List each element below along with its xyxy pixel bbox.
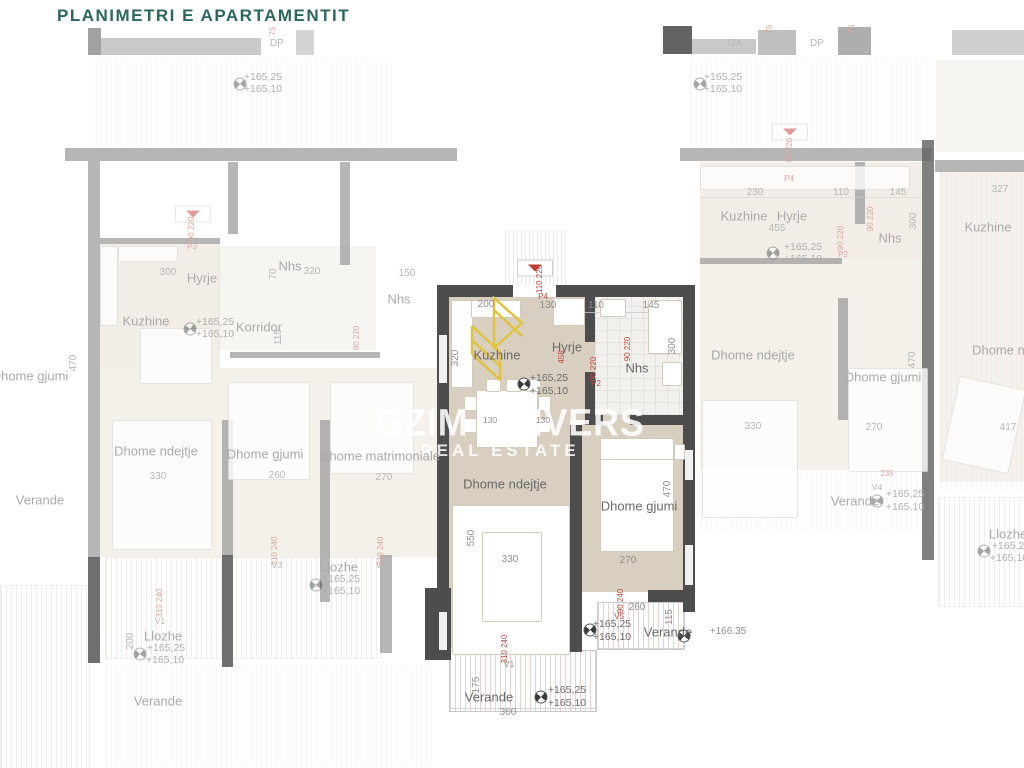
- plan-label: +166.35: [710, 627, 746, 637]
- plan-label: +165,25: [244, 72, 282, 83]
- plan-label: 90 220: [624, 337, 632, 361]
- plan-label: +165,10: [784, 254, 822, 265]
- plan-label: DP: [810, 39, 824, 49]
- plan-label: 470: [908, 352, 918, 369]
- wall-segment: [340, 162, 350, 265]
- furniture-sofa: [112, 420, 212, 550]
- plan-label: 455: [769, 224, 786, 234]
- plan-label: 470: [663, 481, 673, 498]
- plan-label: 75: [766, 25, 774, 34]
- plan-label: +165,25: [784, 242, 822, 253]
- plan-label: Nhs: [878, 232, 901, 245]
- wall-segment: [228, 162, 238, 234]
- plan-label: +165,10: [244, 84, 282, 95]
- plan-label: +165,10: [530, 386, 568, 397]
- plan-label: V1: [155, 617, 165, 626]
- plan-label: Dhome matrimoniale: [320, 450, 440, 463]
- plan-label: Nhs: [387, 293, 410, 306]
- plan-label: 145: [890, 188, 907, 198]
- plan-label: 300: [160, 268, 177, 278]
- plan-label: Hyrje: [777, 210, 807, 223]
- plan-label: +165,25: [548, 685, 586, 696]
- plan-label: 330: [150, 472, 167, 482]
- plan-label: 75: [269, 27, 277, 36]
- plan-label: P2: [591, 380, 601, 388]
- furniture-nightstand: [674, 444, 685, 460]
- balcony-verande: [105, 665, 432, 767]
- upper-slab: [663, 26, 692, 54]
- wall-segment: [65, 148, 457, 161]
- upper-slab: [692, 39, 756, 54]
- plan-label: P3: [187, 243, 197, 251]
- plan-label: Kuzhine: [965, 221, 1012, 234]
- wall-segment: [222, 555, 233, 667]
- plan-label: 90 220: [786, 138, 794, 162]
- plan-label: Dhome gjumi: [845, 371, 922, 384]
- plan-label: Nhs: [278, 260, 301, 273]
- plan-label: V4: [872, 483, 882, 492]
- plan-label: V3: [376, 561, 386, 570]
- plan-label: Verande: [134, 695, 182, 708]
- plan-label: 550: [467, 530, 477, 547]
- plan-label: Kuzhine: [474, 349, 521, 362]
- window-slit: [685, 450, 693, 480]
- plan-label: 327: [992, 185, 1009, 195]
- upper-slab: [296, 30, 314, 55]
- plan-label: +165,25: [992, 541, 1024, 552]
- plan-label: Dhome ndejtje: [114, 445, 198, 458]
- plan-label: Dhome ndejtje: [972, 344, 1024, 357]
- plan-label: 417: [1000, 423, 1017, 433]
- plan-label: 115: [665, 609, 675, 625]
- plan-label: Llozhe: [144, 630, 182, 643]
- window-slit: [685, 545, 693, 585]
- wall-segment: [88, 557, 100, 663]
- plan-label: 235: [880, 470, 893, 478]
- plan-label: 90 220: [188, 217, 196, 241]
- wall-segment: [648, 590, 695, 602]
- plan-label: 90 220: [353, 326, 361, 350]
- plan-label: Verande: [831, 495, 879, 508]
- plan-label: 115: [274, 329, 284, 345]
- plan-label: 310 240: [501, 635, 509, 664]
- wall-segment: [230, 352, 380, 358]
- plan-label: +165,10: [196, 329, 234, 340]
- plan-label: Nhs: [625, 362, 648, 375]
- plan-label: +165,25: [593, 619, 631, 630]
- floor-plan-page: PLANIMETRI E APARTAMENTIT: [0, 0, 1024, 768]
- plan-label: +165,10: [548, 698, 586, 709]
- plan-label: Llozhe: [989, 528, 1024, 541]
- plan-label: +165,25: [886, 489, 924, 500]
- plan-label: +165,10: [886, 502, 924, 513]
- plan-label: 90 240: [617, 589, 625, 613]
- plan-label: +165,10: [322, 586, 360, 597]
- plan-label: P2: [838, 251, 848, 259]
- plan-label: Dhome gjumi: [601, 500, 678, 513]
- dimension-line: [597, 648, 683, 649]
- plan-label: 110: [588, 301, 604, 311]
- plan-label: +165,25: [196, 317, 234, 328]
- upper-slab: [952, 30, 1024, 55]
- plan-label: Dhome ndejtje: [711, 349, 795, 362]
- wall-segment: [100, 238, 220, 244]
- plan-label: +165,25: [147, 643, 185, 654]
- plan-label: 260: [629, 603, 646, 613]
- plan-label: 110: [833, 188, 849, 198]
- plan-label: 90 220: [867, 207, 875, 231]
- plan-label: Dhome gjumi: [0, 370, 68, 383]
- plan-label: +165,10: [704, 84, 742, 95]
- plan-label: Verande: [465, 691, 513, 704]
- plan-label: P4: [784, 175, 794, 183]
- plan-label: 320: [304, 267, 321, 277]
- plan-label: 150: [399, 269, 416, 279]
- furniture-counter: [100, 246, 118, 326]
- plan-label: 470: [69, 355, 79, 372]
- plan-label: 200: [478, 300, 495, 310]
- plan-label: 230: [747, 188, 764, 198]
- plan-label: 260: [269, 471, 286, 481]
- plan-label: 270: [620, 556, 637, 566]
- plan-label: 70: [269, 268, 279, 279]
- upper-slab: [758, 30, 796, 55]
- plan-label: +165,25: [704, 72, 742, 83]
- plan-label: 330: [502, 555, 519, 565]
- plan-label: 320: [451, 350, 461, 367]
- plan-label: +165,25: [322, 574, 360, 585]
- plan-label: Verande: [16, 494, 64, 507]
- plan-label: 145: [643, 301, 660, 311]
- furniture-rug: [482, 532, 542, 622]
- wall-segment: [425, 588, 451, 660]
- watermark-brand: GZIM UNIVERS: [375, 403, 644, 446]
- plan-label: 130: [540, 301, 557, 311]
- plan-label: Llozhe: [320, 561, 358, 574]
- furniture-bed: [228, 382, 310, 480]
- furniture-sink: [553, 298, 585, 326]
- plan-label: Kuzhine: [721, 210, 768, 223]
- furniture-wc: [662, 362, 682, 386]
- wall-segment: [88, 161, 100, 559]
- wall-segment: [935, 160, 1024, 172]
- plan-label: +165,10: [990, 553, 1024, 564]
- wall-segment: [680, 148, 932, 161]
- plan-label: 310 240: [156, 589, 164, 618]
- plan-label: +165,10: [593, 632, 631, 643]
- plan-label: 455: [558, 350, 566, 363]
- window-slit: [439, 335, 447, 383]
- plan-label: 130: [483, 416, 497, 425]
- plan-label: 300: [909, 213, 919, 230]
- plan-label: 200: [126, 633, 136, 650]
- plan-label: Verande: [644, 626, 692, 639]
- furniture-sofa: [702, 400, 798, 518]
- upper-slab: [101, 38, 261, 55]
- plan-label: +165,10: [146, 655, 184, 666]
- plan-label: 310 240: [271, 537, 279, 566]
- plan-label: 130: [536, 416, 550, 425]
- plan-label: 90 220: [590, 357, 598, 381]
- balcony-column: [0, 585, 90, 768]
- plan-label: Dhome gjumi: [227, 448, 304, 461]
- furniture-counter: [118, 246, 178, 262]
- plan-label: 270: [866, 423, 883, 433]
- upper-slab: [88, 28, 101, 55]
- plan-label: Kuzhine: [123, 315, 170, 328]
- plan-label: DA: [728, 39, 742, 49]
- plan-label: 300: [668, 338, 678, 355]
- plan-label: 330: [745, 422, 762, 432]
- plan-label: 110 220: [536, 265, 544, 293]
- wall-segment: [556, 285, 695, 297]
- plan-label: Dhome ndejtje: [463, 478, 547, 491]
- floor-area: [936, 60, 1024, 152]
- plan-label: Hyrje: [187, 272, 217, 285]
- plan-label: 270: [376, 473, 393, 483]
- window-slit: [439, 612, 447, 650]
- furniture-counter: [700, 166, 910, 190]
- plan-label: 90 220: [837, 226, 845, 250]
- plan-label: 360: [500, 708, 517, 718]
- plan-label: +165,25: [530, 373, 568, 384]
- watermark-tagline: REAL ESTATE: [420, 441, 579, 461]
- plan-label: 75: [848, 25, 856, 34]
- page-title: PLANIMETRI E APARTAMENTIT: [57, 6, 350, 26]
- wall-segment: [838, 298, 848, 420]
- plan-label: DP: [270, 39, 284, 49]
